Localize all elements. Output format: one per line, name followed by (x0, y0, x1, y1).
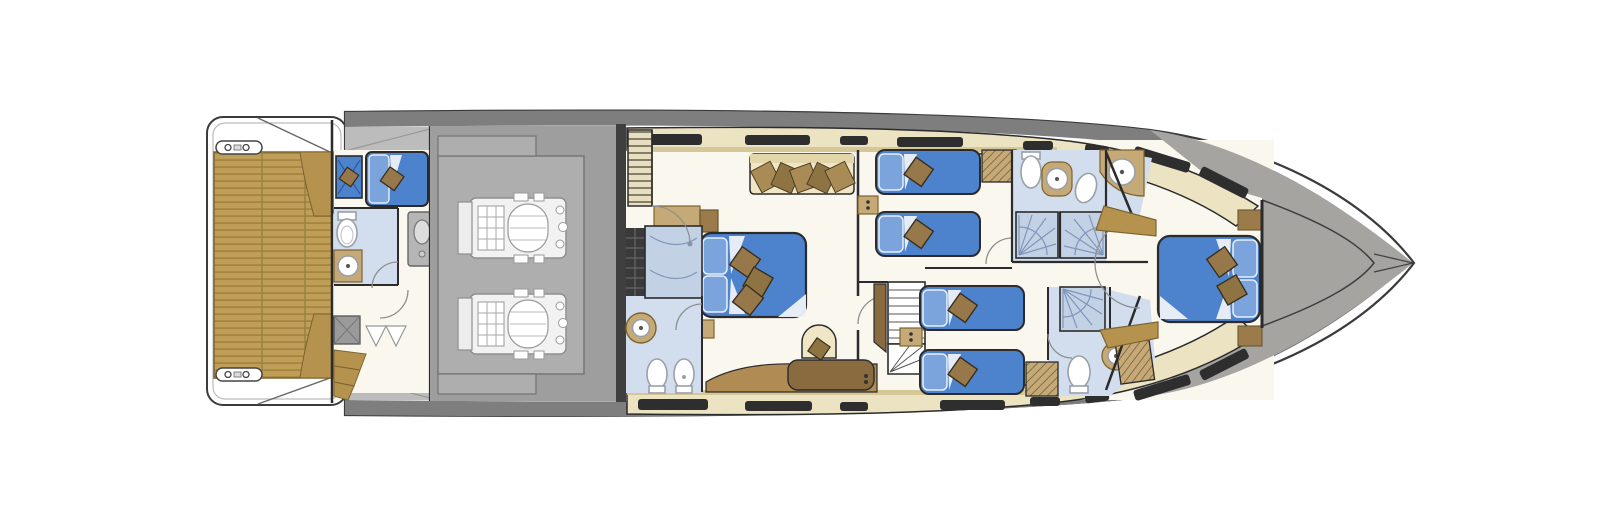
engine-starboard (458, 289, 568, 359)
dressing-stool (802, 325, 836, 360)
window (840, 402, 868, 411)
nightstand (900, 328, 922, 346)
single-bed (876, 212, 980, 256)
window (1023, 141, 1053, 150)
window (897, 137, 963, 147)
cleat-bottom (216, 368, 262, 381)
toilet (1068, 356, 1090, 393)
crew-toilet (337, 212, 357, 247)
cabinet (1238, 210, 1262, 230)
companionway-ladder (628, 130, 652, 206)
window (1030, 397, 1060, 406)
cleat-top (216, 141, 262, 154)
single-bed (920, 286, 1024, 330)
crew-locker (336, 156, 362, 198)
window (745, 135, 810, 145)
shower-stall (1016, 212, 1058, 258)
crew-bed (366, 152, 428, 206)
toilet (1021, 152, 1041, 188)
single-bed (920, 350, 1024, 394)
teak-deck (214, 120, 347, 403)
master-sofa (750, 154, 855, 194)
engine-room (430, 124, 626, 402)
pillow (1233, 240, 1257, 277)
master-sink (626, 313, 656, 343)
nightstand (858, 196, 878, 214)
window (638, 399, 708, 410)
cabinet (1238, 326, 1262, 346)
sink (1042, 162, 1072, 196)
master-bed (700, 233, 806, 317)
crew-quarters (334, 126, 436, 401)
master-shower (645, 226, 702, 298)
pillow (703, 238, 727, 274)
wardrobe (1026, 362, 1058, 396)
yacht-deck-plan (0, 0, 1600, 507)
master-bidet (674, 359, 694, 393)
window (745, 401, 812, 411)
single-bed (876, 150, 980, 194)
crew-sink (334, 250, 362, 282)
engine-port (458, 193, 568, 263)
master-bathroom (626, 226, 702, 393)
master-toilet (647, 359, 667, 393)
shower-stall (1060, 287, 1105, 331)
utility-box (334, 316, 360, 344)
stair-rail (874, 284, 886, 352)
engine-room-bulkhead (616, 124, 626, 402)
window (940, 400, 1005, 410)
vip-bed (1158, 236, 1260, 322)
window (840, 136, 868, 145)
pillow (703, 276, 727, 312)
